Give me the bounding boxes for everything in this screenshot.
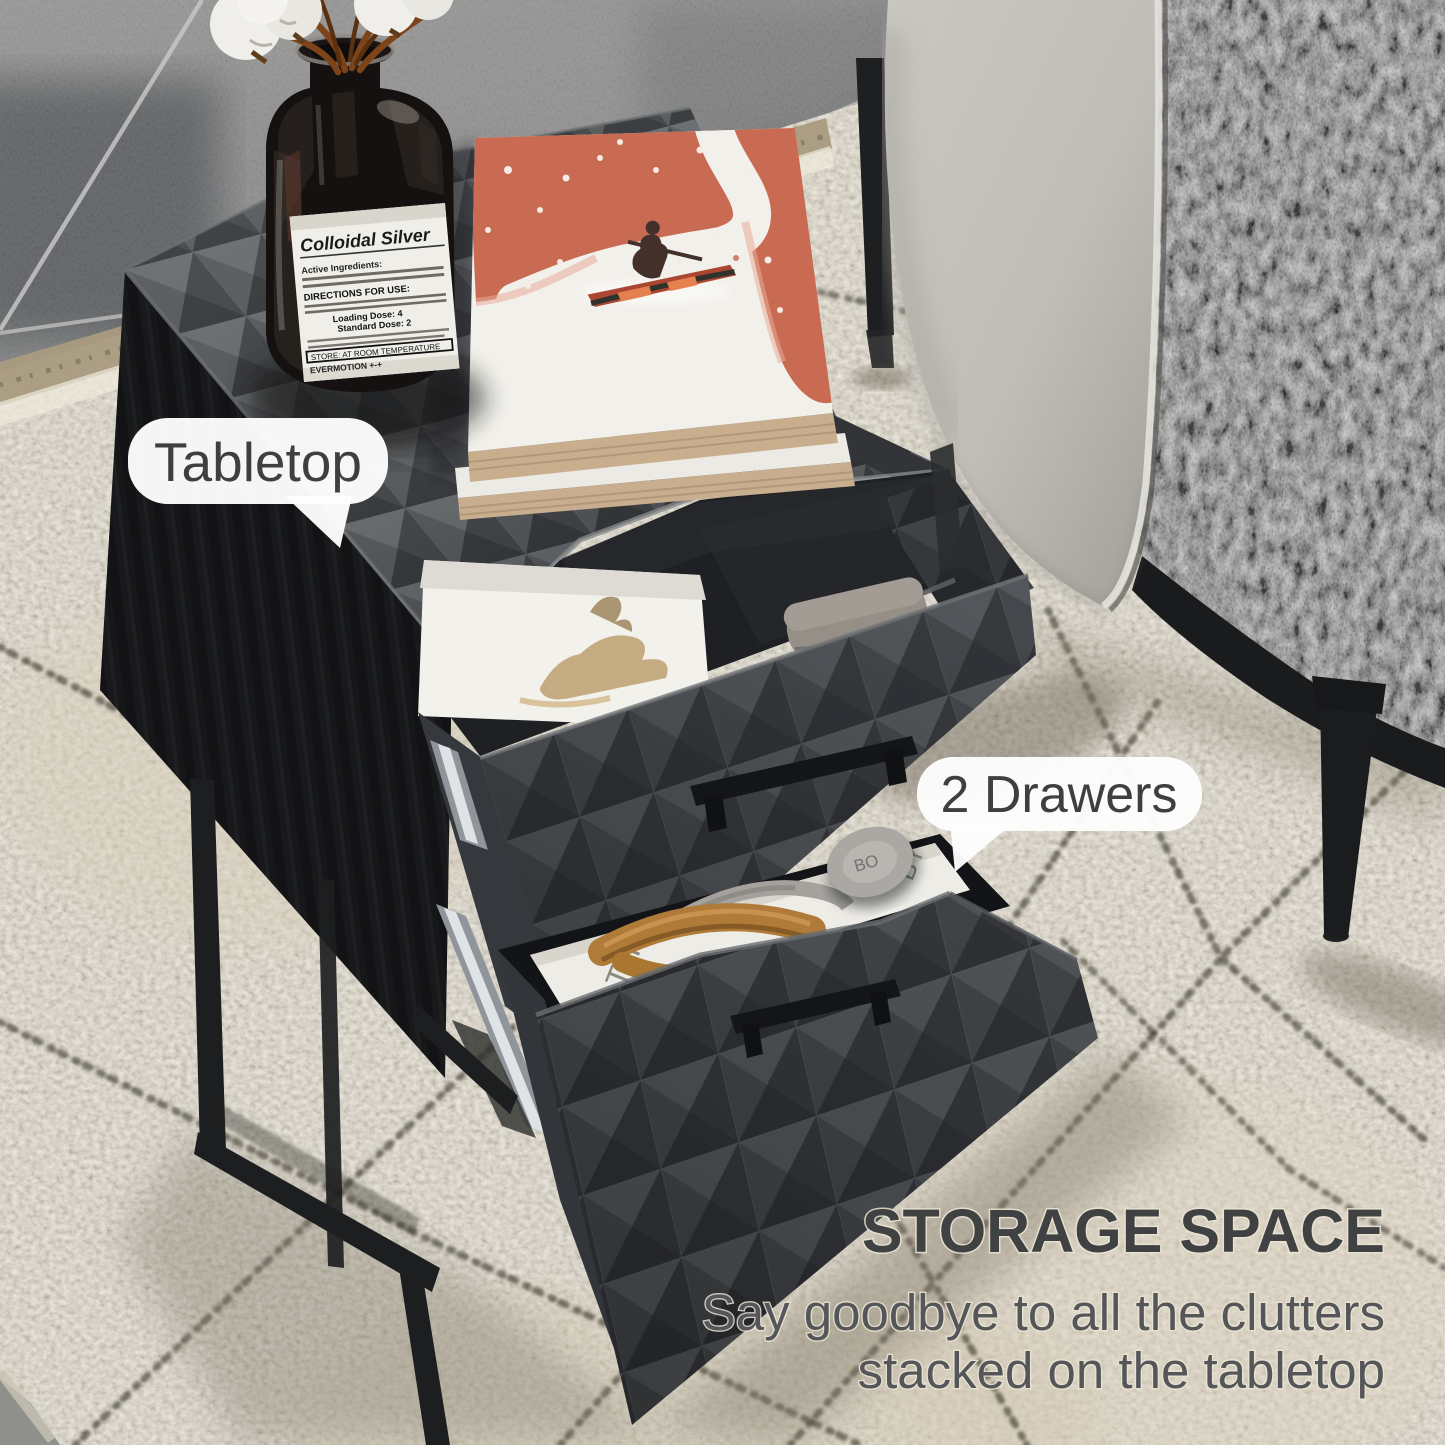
svg-text:Say goodbye to all the clutter: Say goodbye to all the clutters: [702, 1284, 1385, 1341]
svg-text:stacked on the tabletop: stacked on the tabletop: [858, 1342, 1385, 1399]
svg-text:STORAGE SPACE: STORAGE SPACE: [862, 1197, 1385, 1265]
svg-text:2 Drawers: 2 Drawers: [941, 766, 1178, 824]
svg-text:Tabletop: Tabletop: [154, 431, 362, 493]
